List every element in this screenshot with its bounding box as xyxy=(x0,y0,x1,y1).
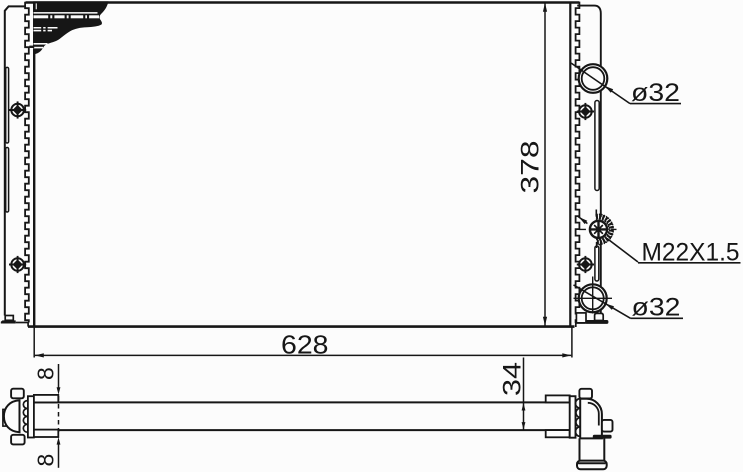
svg-text:8: 8 xyxy=(33,367,59,380)
svg-text:34: 34 xyxy=(499,362,527,396)
svg-text:ø32: ø32 xyxy=(631,79,680,107)
svg-text:8: 8 xyxy=(33,454,59,467)
svg-text:M22X1.5: M22X1.5 xyxy=(642,239,740,267)
svg-text:ø32: ø32 xyxy=(632,294,681,322)
svg-text:628: 628 xyxy=(281,330,329,360)
svg-text:378: 378 xyxy=(517,141,545,194)
